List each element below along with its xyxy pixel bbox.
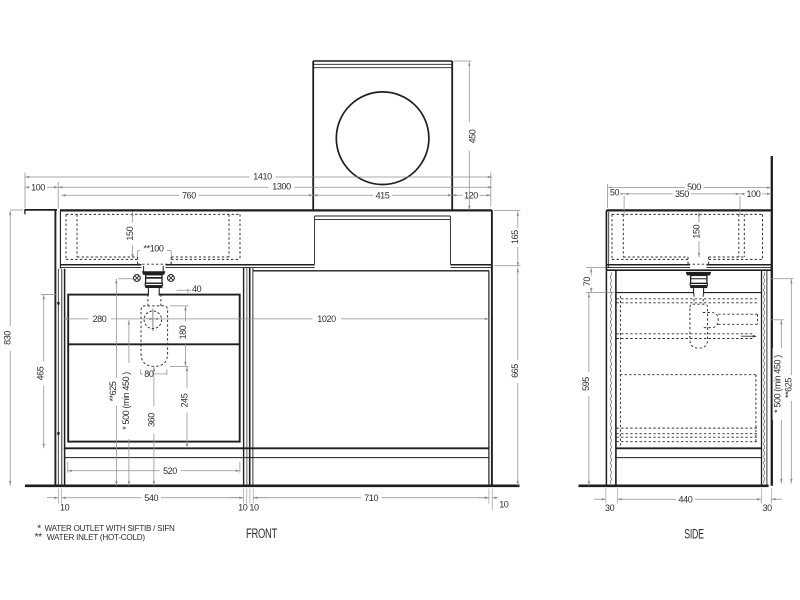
svg-text:350: 350: [675, 189, 689, 199]
svg-text:540: 540: [144, 493, 158, 503]
svg-text:520: 520: [163, 466, 177, 476]
svg-text:**625: **625: [108, 381, 118, 401]
svg-text:120: 120: [464, 190, 478, 200]
svg-text:SIDE: SIDE: [684, 526, 704, 541]
svg-text:465: 465: [36, 366, 46, 380]
svg-text:1410: 1410: [253, 171, 272, 181]
svg-text:50: 50: [610, 188, 620, 198]
svg-text:40: 40: [192, 284, 202, 294]
svg-text:440: 440: [678, 494, 692, 504]
svg-text:**: **: [35, 531, 43, 543]
svg-text:30: 30: [605, 503, 615, 513]
svg-text:70: 70: [582, 277, 592, 287]
svg-text:665: 665: [510, 364, 520, 378]
svg-text:**100: **100: [143, 244, 163, 254]
svg-text:30: 30: [762, 503, 772, 513]
svg-text:10: 10: [499, 499, 509, 509]
svg-text:1020: 1020: [317, 314, 336, 324]
svg-text:245: 245: [179, 393, 189, 407]
svg-text:360: 360: [146, 413, 156, 427]
svg-text:10 10: 10 10: [238, 502, 259, 512]
svg-text:165: 165: [510, 230, 520, 244]
svg-text:WATER INLET (HOT-COLD): WATER INLET (HOT-COLD): [47, 532, 145, 542]
svg-text:595: 595: [581, 377, 591, 391]
svg-text:450: 450: [468, 129, 478, 143]
svg-text:180: 180: [178, 325, 188, 339]
svg-text:FRONT: FRONT: [246, 526, 277, 541]
svg-text:* 500 (min 450 ): * 500 (min 450 ): [121, 372, 131, 430]
svg-text:415: 415: [376, 190, 390, 200]
svg-text:150: 150: [125, 226, 135, 240]
svg-text:100: 100: [746, 189, 760, 199]
svg-text:100: 100: [31, 182, 45, 192]
svg-text:830: 830: [3, 331, 13, 345]
svg-text:1300: 1300: [272, 182, 291, 192]
svg-text:280: 280: [93, 314, 107, 324]
svg-text:710: 710: [364, 493, 378, 503]
svg-text:760: 760: [182, 190, 196, 200]
svg-text:**625: **625: [783, 378, 793, 398]
svg-text:* 500 (min 450 ): * 500 (min 450 ): [772, 355, 782, 413]
svg-text:10: 10: [60, 502, 70, 512]
svg-text:150: 150: [691, 224, 701, 238]
svg-text:80: 80: [144, 369, 154, 379]
